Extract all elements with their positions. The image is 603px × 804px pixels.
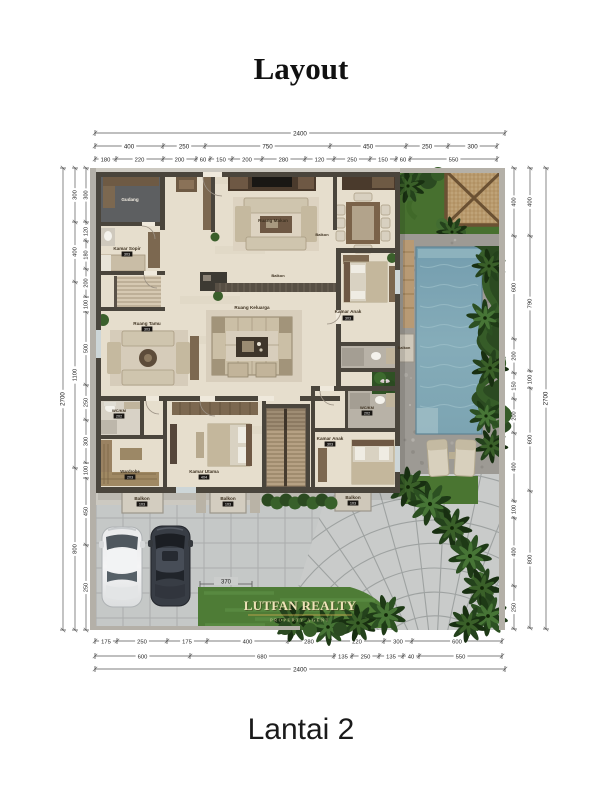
svg-text:WC/KM: WC/KM xyxy=(112,408,127,413)
svg-text:680: 680 xyxy=(257,654,267,660)
svg-text:Balkon: Balkon xyxy=(345,495,361,500)
svg-text:600: 600 xyxy=(511,283,517,292)
svg-text:200: 200 xyxy=(83,278,89,287)
svg-text:1X3: 1X3 xyxy=(139,502,145,506)
svg-text:180: 180 xyxy=(83,250,89,259)
svg-text:Balkon: Balkon xyxy=(271,273,285,278)
svg-text:WC/KM: WC/KM xyxy=(360,405,375,410)
svg-text:200: 200 xyxy=(511,411,517,420)
svg-text:120: 120 xyxy=(315,157,325,163)
svg-text:3X3: 3X3 xyxy=(124,252,130,256)
svg-text:750: 750 xyxy=(262,143,273,150)
svg-text:Lantai 2: Lantai 2 xyxy=(248,713,355,746)
svg-text:550: 550 xyxy=(456,654,466,660)
svg-text:800: 800 xyxy=(73,544,79,554)
svg-text:600: 600 xyxy=(138,654,148,660)
svg-text:Ruang Makan: Ruang Makan xyxy=(258,218,288,223)
svg-text:40: 40 xyxy=(408,654,414,660)
svg-text:250: 250 xyxy=(511,603,517,612)
svg-text:280: 280 xyxy=(279,157,289,163)
svg-text:250: 250 xyxy=(83,398,89,407)
svg-text:100: 100 xyxy=(528,375,534,385)
svg-text:Wardrobe: Wardrobe xyxy=(120,469,140,474)
svg-text:300: 300 xyxy=(393,639,403,645)
svg-text:200: 200 xyxy=(511,351,517,360)
svg-text:60: 60 xyxy=(400,157,406,163)
svg-text:120: 120 xyxy=(83,227,89,236)
svg-text:LUTFAN REALTY: LUTFAN REALTY xyxy=(244,598,357,613)
svg-text:2700: 2700 xyxy=(60,392,67,406)
svg-text:2X3: 2X3 xyxy=(127,475,133,479)
svg-text:2400: 2400 xyxy=(293,666,307,673)
svg-text:Gudang: Gudang xyxy=(121,197,139,202)
svg-text:135: 135 xyxy=(386,654,396,660)
svg-text:Balkon: Balkon xyxy=(315,232,329,237)
svg-text:400: 400 xyxy=(511,197,517,206)
svg-text:200: 200 xyxy=(175,157,185,163)
svg-text:400: 400 xyxy=(511,547,517,556)
svg-text:300: 300 xyxy=(83,190,89,199)
svg-text:100: 100 xyxy=(511,505,517,514)
svg-text:800: 800 xyxy=(528,555,534,565)
svg-text:400: 400 xyxy=(243,639,253,645)
svg-text:150: 150 xyxy=(216,157,226,163)
svg-text:60: 60 xyxy=(200,157,206,163)
svg-text:250: 250 xyxy=(179,143,190,150)
svg-text:450: 450 xyxy=(363,143,374,150)
svg-text:600: 600 xyxy=(528,435,534,445)
svg-text:3X3: 3X3 xyxy=(327,442,333,446)
svg-text:1100: 1100 xyxy=(73,369,79,381)
svg-text:Kamar Sopir: Kamar Sopir xyxy=(113,246,141,251)
svg-text:2X2: 2X2 xyxy=(364,411,370,415)
svg-text:400: 400 xyxy=(73,247,79,257)
svg-text:2400: 2400 xyxy=(293,130,307,137)
svg-text:Balkon: Balkon xyxy=(134,496,150,501)
svg-text:1X3: 1X3 xyxy=(225,502,231,506)
svg-text:100: 100 xyxy=(83,300,89,309)
svg-text:370: 370 xyxy=(221,580,232,586)
svg-text:150: 150 xyxy=(511,381,517,390)
svg-text:220: 220 xyxy=(135,157,145,163)
svg-text:4X4: 4X4 xyxy=(201,475,207,479)
svg-text:2700: 2700 xyxy=(543,391,550,405)
svg-text:400: 400 xyxy=(511,462,517,471)
svg-text:135: 135 xyxy=(338,654,348,660)
svg-text:250: 250 xyxy=(347,157,357,163)
svg-text:400: 400 xyxy=(124,143,135,150)
svg-text:Balkon: Balkon xyxy=(220,496,236,501)
svg-text:Layout: Layout xyxy=(254,51,349,86)
svg-text:300: 300 xyxy=(83,437,89,446)
svg-text:150: 150 xyxy=(378,157,388,163)
svg-text:Kamar Utama: Kamar Utama xyxy=(189,469,219,474)
svg-text:250: 250 xyxy=(422,143,433,150)
svg-text:175: 175 xyxy=(182,639,192,645)
svg-text:300: 300 xyxy=(73,190,79,200)
svg-text:280: 280 xyxy=(304,639,314,645)
svg-text:450: 450 xyxy=(83,507,89,516)
svg-text:500: 500 xyxy=(83,344,89,353)
svg-text:PROPERTY AGENT: PROPERTY AGENT xyxy=(270,618,330,623)
svg-text:100: 100 xyxy=(83,466,89,475)
svg-text:250: 250 xyxy=(361,654,371,660)
svg-text:Balkon: Balkon xyxy=(398,346,411,350)
svg-text:600: 600 xyxy=(452,639,462,645)
svg-text:175: 175 xyxy=(101,639,111,645)
svg-text:180: 180 xyxy=(101,157,111,163)
svg-text:3X3: 3X3 xyxy=(144,327,150,331)
svg-text:400: 400 xyxy=(528,197,534,207)
svg-text:200: 200 xyxy=(242,157,252,163)
svg-text:790: 790 xyxy=(528,299,534,309)
svg-text:1X3: 1X3 xyxy=(350,501,356,505)
svg-text:Kamar Anak: Kamar Anak xyxy=(317,436,344,441)
svg-text:2X2: 2X2 xyxy=(116,414,122,418)
svg-text:Ruang Tamu: Ruang Tamu xyxy=(133,321,161,326)
svg-text:3X3: 3X3 xyxy=(345,316,351,320)
svg-text:250: 250 xyxy=(83,583,89,592)
svg-text:250: 250 xyxy=(137,639,147,645)
svg-text:Kamar Anak: Kamar Anak xyxy=(335,309,362,314)
svg-text:550: 550 xyxy=(449,157,459,163)
svg-text:300: 300 xyxy=(467,143,478,150)
svg-text:Ruang Keluarga: Ruang Keluarga xyxy=(234,305,270,310)
